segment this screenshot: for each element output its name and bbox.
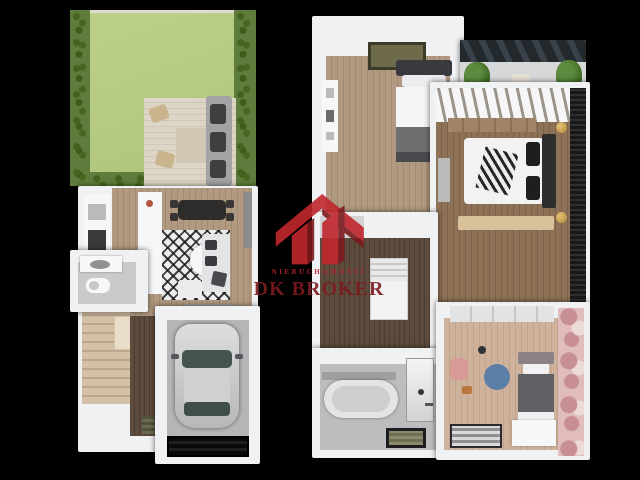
oven <box>88 230 106 252</box>
car-windshield <box>182 350 232 368</box>
house-logo-icon <box>268 186 370 266</box>
throw-blanket <box>211 271 228 288</box>
dining-chair <box>170 213 178 221</box>
bath-mat <box>386 428 426 448</box>
deck-table <box>176 128 210 162</box>
bathroom-ground <box>70 250 148 312</box>
car-roof <box>184 368 230 402</box>
headboard <box>518 352 554 364</box>
sofa-cushion <box>210 132 226 152</box>
bedside-lamp <box>556 122 567 133</box>
kids-room <box>436 302 590 460</box>
toy <box>462 386 472 394</box>
kids-desk <box>512 420 556 446</box>
balcony-glass-roof <box>460 40 586 62</box>
bathroom-upper <box>312 348 444 458</box>
car-rear-window <box>184 402 230 416</box>
bedroom-desk <box>322 80 338 152</box>
car-mirror <box>235 354 243 359</box>
cooktop <box>88 204 106 220</box>
dresser <box>438 158 450 202</box>
bathtub <box>324 380 398 418</box>
ground-floor-plan <box>70 10 260 465</box>
hedge-left <box>70 10 90 186</box>
floral-wallpaper <box>558 308 584 456</box>
brand-name-large: DK BROKER <box>231 278 407 301</box>
wardrobe <box>448 118 536 132</box>
floor-plan-render: NIERUCHOMOŚCI DK BROKER <box>0 0 640 480</box>
sink-basin <box>90 260 110 269</box>
sofa <box>202 234 230 292</box>
headboard <box>396 60 452 76</box>
bathtub-basin <box>332 386 390 412</box>
bedside-lamp <box>556 212 567 223</box>
bath-shelf <box>322 372 396 380</box>
outdoor-sofa <box>206 96 232 186</box>
play-rug <box>484 364 510 390</box>
deck-chair <box>154 150 175 169</box>
pillow <box>526 176 540 200</box>
kids-armchair <box>450 358 468 380</box>
toilet-lid <box>89 281 99 290</box>
watermark: NIERUCHOMOŚCI DK BROKER <box>256 186 382 308</box>
dining-chair <box>170 200 178 208</box>
dining-chair <box>226 213 234 221</box>
throw-pillow <box>205 256 217 266</box>
car-mirror <box>171 354 179 359</box>
sofa-cushion <box>210 104 226 124</box>
hedge-right <box>234 10 256 186</box>
pillow <box>523 364 549 374</box>
striped-rug <box>450 424 502 448</box>
pergola-ceiling <box>436 88 584 122</box>
car <box>175 324 239 428</box>
tv-unit <box>244 192 252 248</box>
kids-wardrobe <box>450 306 554 322</box>
dining-chair <box>226 200 234 208</box>
accent-wall <box>570 88 586 304</box>
desk-item <box>326 110 334 122</box>
throw-pillow <box>205 240 217 250</box>
shower-handle <box>425 403 433 406</box>
master-bed <box>464 134 556 208</box>
master-bedroom <box>430 82 590 318</box>
kids-blanket <box>518 374 554 412</box>
bed-bench <box>458 216 554 230</box>
brand-name-small: NIERUCHOMOŚCI <box>256 268 382 276</box>
toilet <box>86 278 110 293</box>
vanity-sink <box>80 256 122 272</box>
fence-line <box>70 10 256 13</box>
shower-column <box>406 358 434 422</box>
shower-drain <box>418 389 424 395</box>
pillow <box>526 142 540 166</box>
desk-item <box>326 88 334 98</box>
dining-table <box>178 200 226 220</box>
toy <box>478 346 486 354</box>
sofa-cushion <box>210 160 226 178</box>
ottoman <box>178 280 202 298</box>
headboard <box>542 134 556 208</box>
deck-chair <box>148 103 170 123</box>
garden <box>70 10 256 186</box>
garage-grate <box>167 436 249 457</box>
flower-vase <box>146 200 153 207</box>
desk-item <box>326 132 334 140</box>
garage <box>155 306 260 464</box>
